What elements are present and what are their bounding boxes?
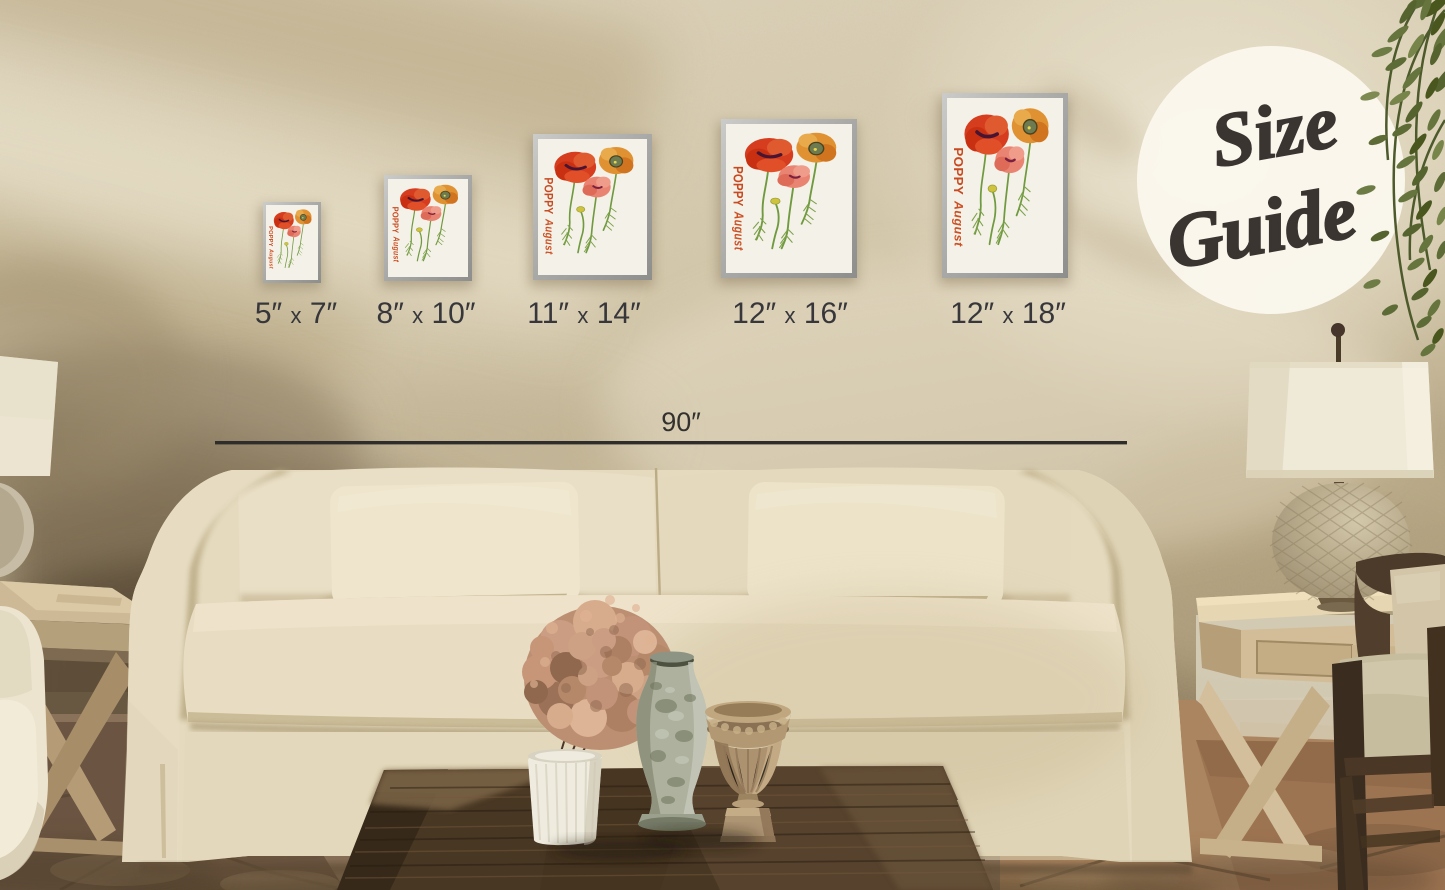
- svg-text:8″ x 10″: 8″ x 10″: [377, 297, 476, 330]
- svg-text:90″: 90″: [661, 407, 701, 437]
